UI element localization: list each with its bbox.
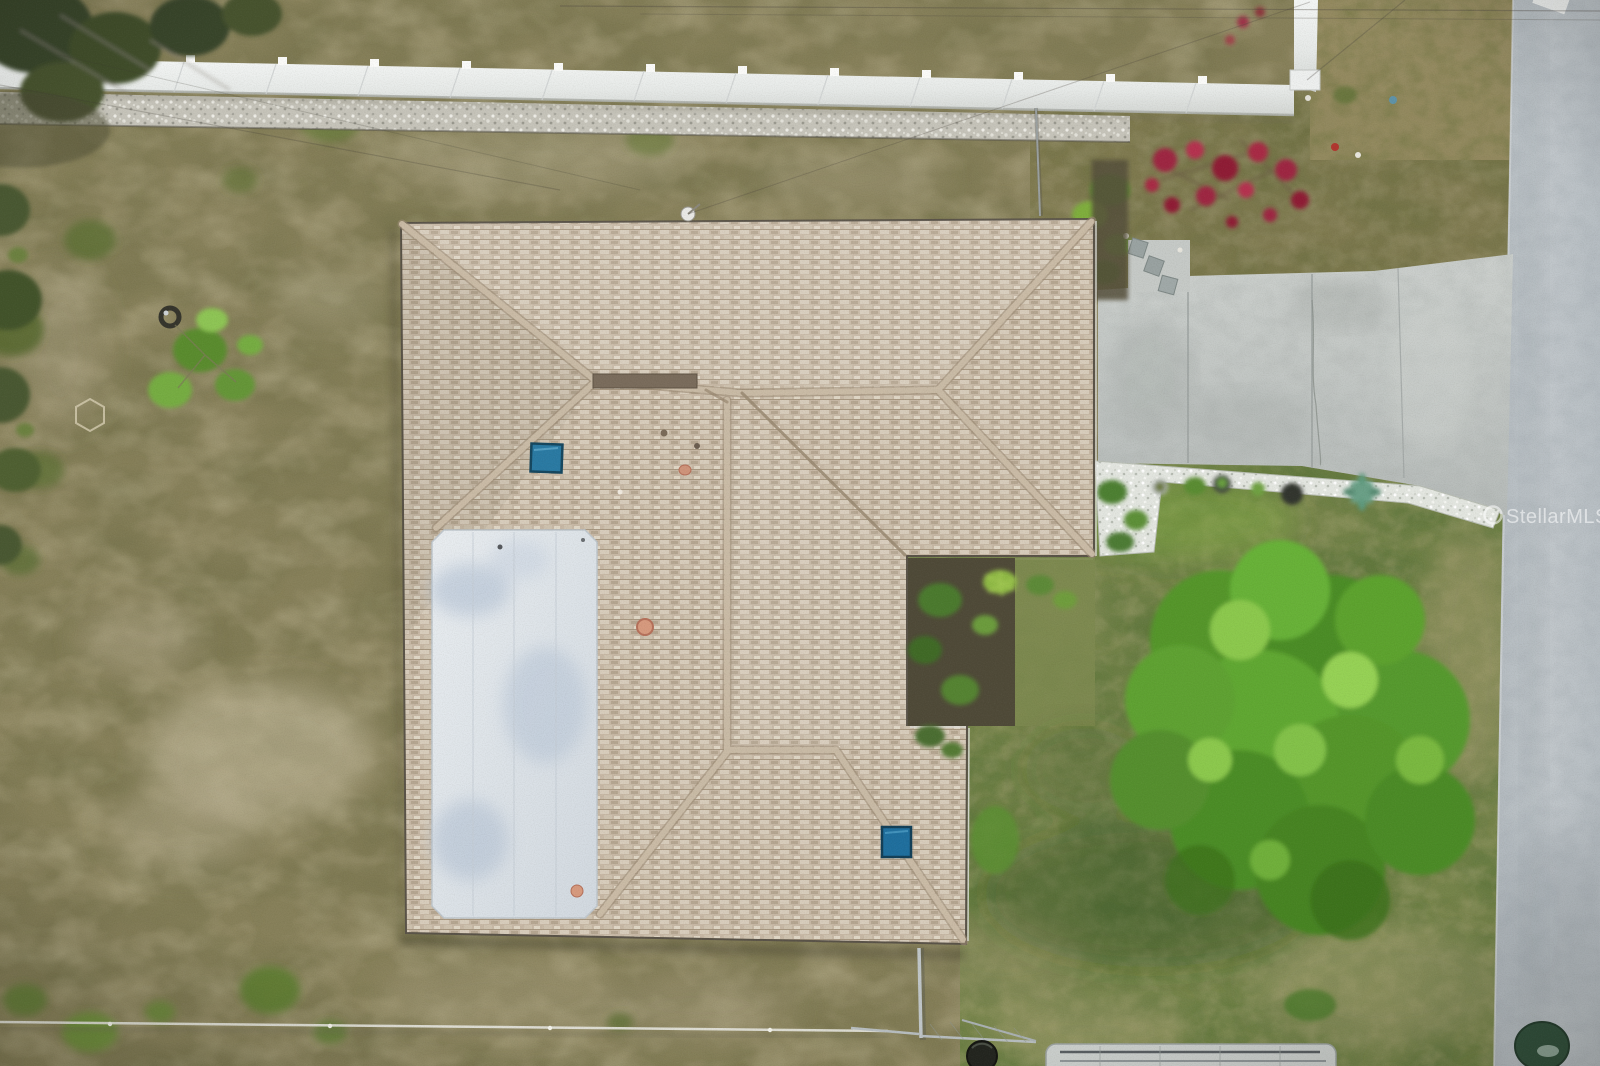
vignette xyxy=(0,0,1600,1066)
watermark-text: StellarMLS xyxy=(1506,506,1600,528)
aerial-photo: StellarMLS xyxy=(0,0,1600,1066)
